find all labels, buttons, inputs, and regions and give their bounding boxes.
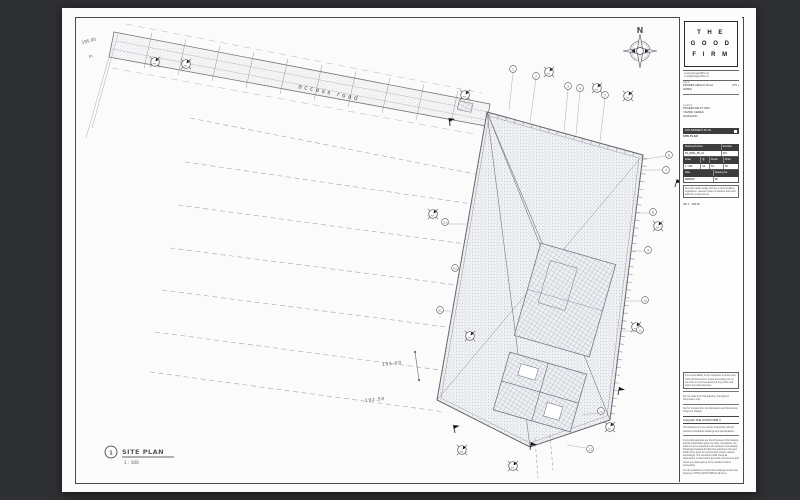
logo-line: F I R M [692,52,729,58]
dwg-label: Drawing No. [714,170,738,176]
copyright-line: Copyright THE GOOD FIRM © [683,416,739,424]
logo-line: G O O D [691,41,732,47]
drawing-number-value: PV_DWG_SP_01 [684,151,722,157]
date-value: 06/05/23 [684,177,714,183]
scale-value: 1 : 100 [684,164,701,170]
drawing-info-table: Drawing Number Revision PV_DWG_SP_01 001… [683,144,739,183]
general-note-text: All works shall comply with the current … [685,187,737,196]
contact-email: e info@thegoodfirm.co [684,75,738,78]
check-value: JD [724,164,738,170]
fine-print: For the avoidance of doubt this drawing … [683,469,739,475]
drawing-number-label: Drawing Number [684,144,722,150]
revision-label: Revision [722,144,738,150]
fine-print: If any discrepancies are found between t… [683,439,739,467]
table-row: 06/05/23 SP [683,177,739,184]
status-block: 10% MOMENT PLAN SITE PLAN [683,128,739,140]
general-note: All works shall comply with the current … [683,185,739,198]
disclaimer: Do not scale from this drawing. Use figu… [683,395,739,401]
checkbox-icon [734,130,737,133]
at-label: @ [701,157,710,163]
desktop-background: { "colors": { "background": "#2f3033", "… [0,0,800,500]
revision-value: 001 [722,151,738,157]
at-value: A1 [701,164,710,170]
client-line2: OZMIA [683,88,739,92]
location-block: Location: PRUEBA MILKY WAY YAMPAI CERES … [683,104,739,119]
date-label: Date [684,170,714,176]
logo-line: T H E [697,30,725,36]
disclaimer: Not for construction. All information an… [683,407,739,413]
dwg-value: SP [714,177,738,183]
drawing-sheet: access road [62,8,756,492]
firm-logo: T H E G O O D F I R M [684,21,738,67]
disclaimer-box: It is responsibility of the contractor t… [683,372,739,389]
scale-label: Scale [684,157,701,163]
client-block: Client: PRUEBA AMALO VILLA ( PV ) OZMIA [683,81,739,97]
check-label: Chkd [724,157,738,163]
disclaimer-stack: It is responsibility of the contractor t… [683,372,739,478]
fine-print: This drawing is to be read in conjunctio… [683,426,739,432]
scale-note: SP 1 : 100.00 [683,203,739,207]
drawing-title: SITE PLAN [683,134,739,140]
location-line: GURGAON [683,115,739,119]
drawn-label: Drawn [710,157,724,163]
contact-block: w www.thegoodfirm.co e info@thegoodfirm.… [683,70,739,81]
drawn-value: TS [710,164,724,170]
client-code: ( PV ) [732,84,739,88]
title-block: T H E G O O D F I R M w www.thegoodfirm.… [679,17,742,482]
